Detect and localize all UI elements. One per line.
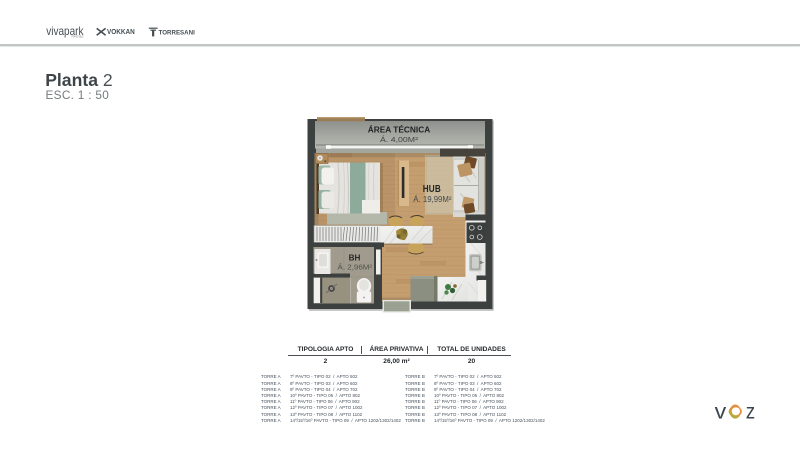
svg-text:vivapark: vivapark — [46, 24, 83, 38]
svg-text:ÁREA TÉCNICA: ÁREA TÉCNICA — [368, 125, 431, 134]
svg-text:z: z — [746, 399, 755, 423]
svg-text:TORRESANI: TORRESANI — [159, 30, 195, 37]
svg-text:PORTO BELO: PORTO BELO — [72, 37, 84, 39]
svg-text:Á. 19,99M²: Á. 19,99M² — [413, 195, 452, 204]
svg-text:VOKKAN: VOKKAN — [107, 29, 135, 36]
svg-text:HUB: HUB — [423, 184, 441, 195]
svg-text:Á. 2,96M²: Á. 2,96M² — [338, 262, 373, 271]
svg-text:Á. 4,00M²: Á. 4,00M² — [380, 135, 419, 144]
svg-text:BH: BH — [349, 252, 361, 262]
svg-text:v: v — [715, 399, 727, 423]
